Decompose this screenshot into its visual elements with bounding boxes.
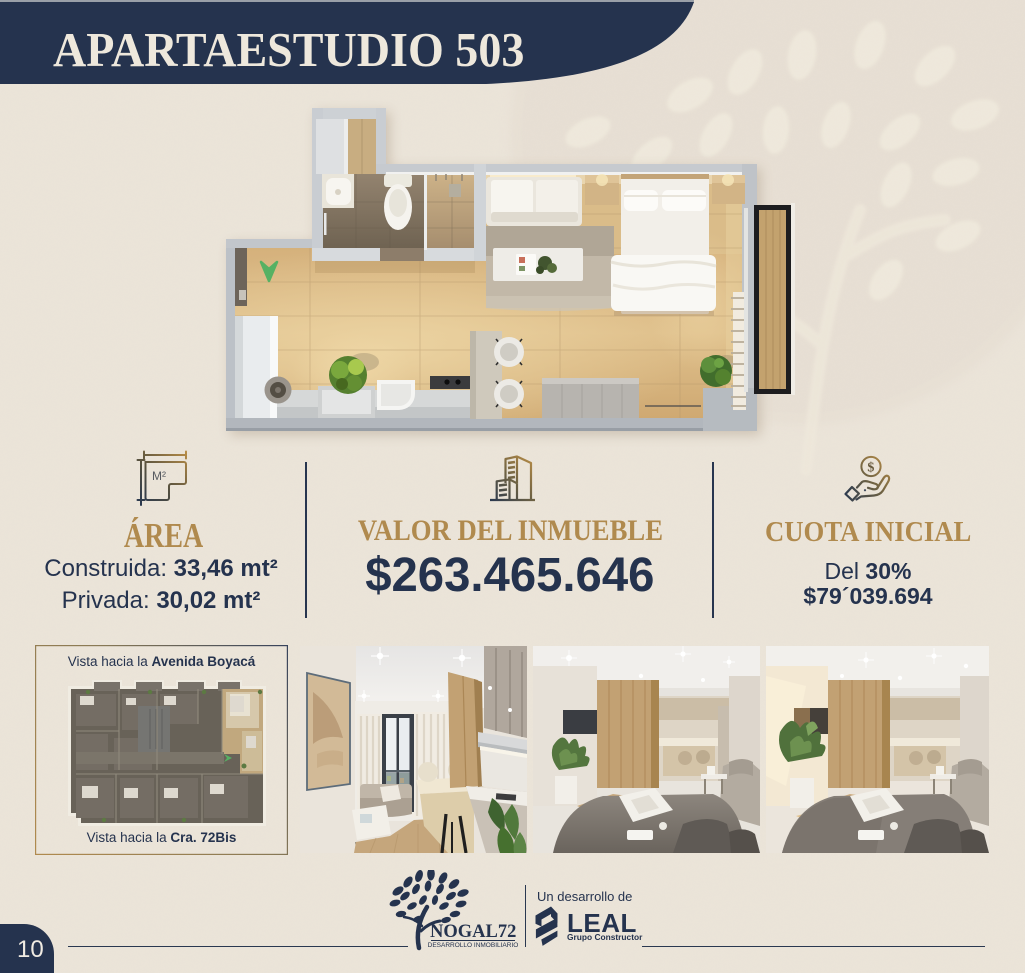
svg-text:$: $ [867,461,874,476]
svg-text:M²: M² [152,469,166,483]
